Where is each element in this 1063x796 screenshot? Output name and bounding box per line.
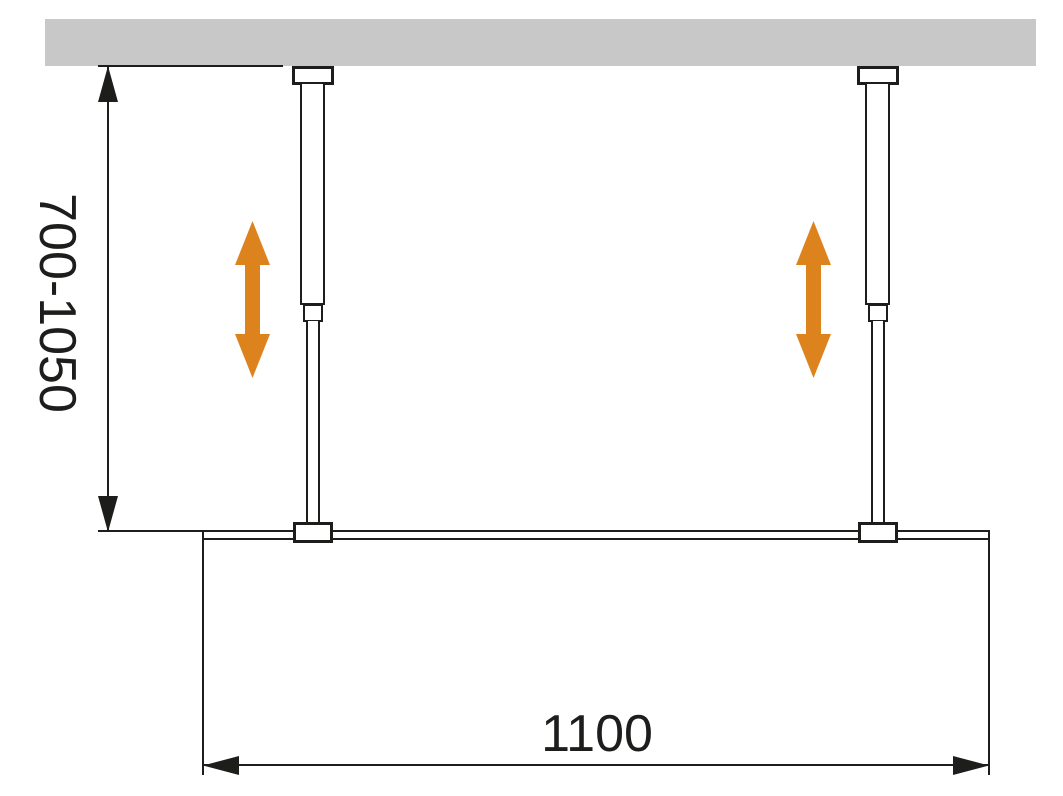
dimension-arrow-left-icon (203, 756, 239, 775)
telescopic-collar (868, 304, 888, 322)
left-support-strut (292, 66, 334, 543)
strut-outer-tube (300, 84, 325, 305)
telescopic-collar (303, 304, 323, 322)
arrow-head-down (796, 334, 831, 378)
arrow-head-up (796, 221, 831, 265)
strut-inner-rod (306, 321, 320, 524)
glass-clamp (293, 522, 333, 543)
arrow-head-down (235, 334, 270, 378)
strut-inner-rod (871, 321, 885, 524)
arrow-shaft (806, 264, 821, 335)
arrow-head-up (235, 221, 270, 265)
height-range-label: 700-1050 (31, 193, 83, 413)
dimension-arrow-down-icon (98, 496, 118, 532)
width-dimension-line (203, 764, 989, 766)
adjust-up-down-arrow-icon (796, 221, 831, 378)
glass-clamp (858, 522, 898, 543)
ceiling-extension-line (98, 65, 283, 67)
ceiling-bracket (857, 66, 899, 85)
ceiling-bracket (292, 66, 334, 85)
strut-outer-tube (865, 84, 890, 305)
installation-diagram: 700-1050 1100 (0, 0, 1063, 796)
dimension-arrow-up-icon (98, 66, 118, 102)
width-label: 1100 (541, 708, 653, 760)
glass-panel-right-edge (988, 530, 990, 775)
height-dimension-line (107, 66, 109, 532)
dimension-arrow-right-icon (953, 756, 989, 775)
height-dimension-extension-line (98, 530, 205, 532)
glass-panel-left-edge (202, 530, 204, 775)
ceiling-slab (45, 19, 1036, 66)
arrow-shaft (245, 264, 260, 335)
right-support-strut (857, 66, 899, 543)
adjust-up-down-arrow-icon (235, 221, 270, 378)
